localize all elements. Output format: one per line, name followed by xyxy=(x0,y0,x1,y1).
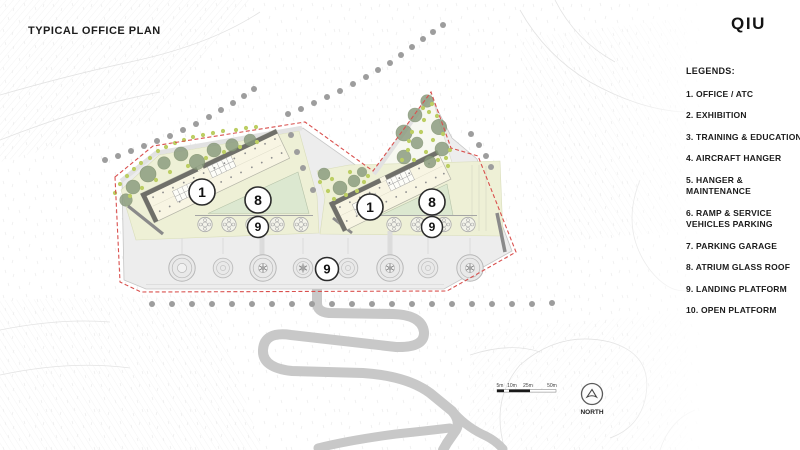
page-title: TYPICAL OFFICE PLAN xyxy=(28,25,161,37)
legend-panel: LEGENDS: 1. OFFICE / ATC 2. EXHIBITION 3… xyxy=(686,66,800,327)
slide: 1 8 9 1 8 9 9 5m 10m 25m 50m xyxy=(0,0,800,450)
legend-item-exhibition: 2. EXHIBITION xyxy=(686,110,800,121)
label-right-atrium-number: 8 xyxy=(428,194,436,210)
north-arrow: NORTH xyxy=(580,384,603,417)
label-left-landing-number: 9 xyxy=(255,220,262,234)
label-central-landing-number: 9 xyxy=(323,262,330,277)
scale-label-5m: 5m xyxy=(497,383,504,389)
legend-item-training: 3. TRAINING & EDUCATION xyxy=(686,132,800,143)
label-right-office: 1 xyxy=(357,194,383,220)
label-left-atrium-number: 8 xyxy=(254,192,262,208)
legend-item-ramp-service: 6. RAMP & SERVICE VEHICLES PARKING xyxy=(686,208,800,231)
legend-item-landing-platform: 9. LANDING PLATFORM xyxy=(686,284,800,295)
legend-item-office: 1. OFFICE / ATC xyxy=(686,89,800,100)
scale-label-50m: 50m xyxy=(547,383,557,389)
legend-item-open-platform: 10. OPEN PLATFORM xyxy=(686,305,800,316)
scale-label-10m: 10m xyxy=(507,383,517,389)
north-label: NORTH xyxy=(580,409,603,416)
site-plan-drawing: 1 8 9 1 8 9 9 5m 10m 25m 50m xyxy=(0,0,800,450)
legend-item-aircraft-hanger: 4. AIRCRAFT HANGER xyxy=(686,153,800,164)
label-left-office-number: 1 xyxy=(198,184,206,200)
label-right-atrium: 8 xyxy=(419,189,445,215)
scale-label-25m: 25m xyxy=(523,383,533,389)
label-right-landing: 9 xyxy=(422,217,443,238)
label-central-landing: 9 xyxy=(316,258,339,281)
label-left-atrium: 8 xyxy=(245,187,271,213)
legend-heading: LEGENDS: xyxy=(686,66,800,76)
legend-item-hanger-maintenance: 5. HANGER & MAINTENANCE xyxy=(686,175,800,198)
company-logo: QIU xyxy=(731,14,766,34)
legend-item-atrium-roof: 8. ATRIUM GLASS ROOF xyxy=(686,262,800,273)
label-right-landing-number: 9 xyxy=(429,220,436,234)
label-right-office-number: 1 xyxy=(366,199,374,215)
label-left-landing: 9 xyxy=(248,217,269,238)
legend-item-parking-garage: 7. PARKING GARAGE xyxy=(686,241,800,252)
label-left-office: 1 xyxy=(189,179,215,205)
